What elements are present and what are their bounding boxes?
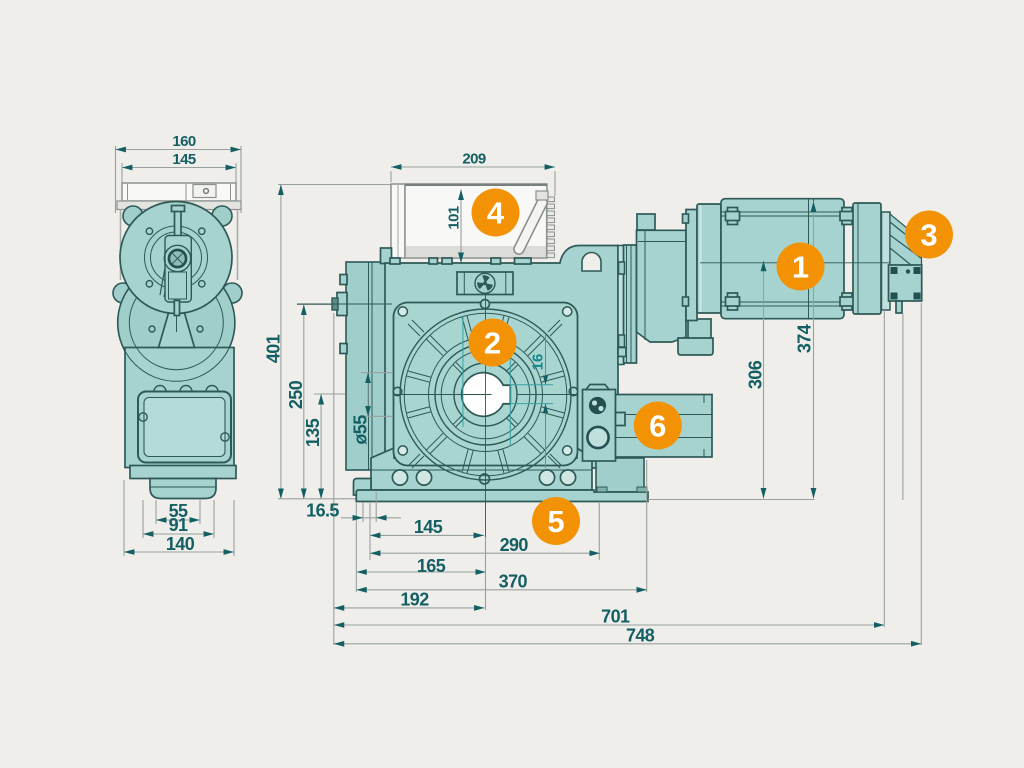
svg-text:2: 2 xyxy=(484,326,501,361)
svg-text:3: 3 xyxy=(920,218,937,253)
svg-text:748: 748 xyxy=(626,625,655,645)
svg-text:140: 140 xyxy=(166,534,195,554)
svg-text:145: 145 xyxy=(172,151,195,168)
svg-text:1: 1 xyxy=(792,250,809,285)
svg-text:290: 290 xyxy=(500,535,529,555)
svg-text:306: 306 xyxy=(746,360,766,389)
svg-text:ø55: ø55 xyxy=(351,415,371,445)
svg-text:370: 370 xyxy=(499,571,528,591)
svg-text:16.5: 16.5 xyxy=(306,500,339,520)
svg-text:5: 5 xyxy=(547,504,564,539)
svg-text:16: 16 xyxy=(530,354,547,371)
svg-text:160: 160 xyxy=(172,133,195,150)
svg-text:91: 91 xyxy=(169,515,188,535)
svg-text:6: 6 xyxy=(649,409,666,444)
svg-text:101: 101 xyxy=(446,206,463,229)
svg-text:209: 209 xyxy=(462,151,485,168)
svg-text:401: 401 xyxy=(264,334,284,363)
svg-text:165: 165 xyxy=(417,556,446,576)
svg-text:250: 250 xyxy=(286,380,306,409)
svg-text:701: 701 xyxy=(601,607,630,627)
svg-text:192: 192 xyxy=(400,590,429,610)
svg-text:4: 4 xyxy=(487,196,505,231)
svg-text:135: 135 xyxy=(303,418,323,447)
svg-text:145: 145 xyxy=(414,517,443,537)
svg-text:374: 374 xyxy=(795,324,815,353)
